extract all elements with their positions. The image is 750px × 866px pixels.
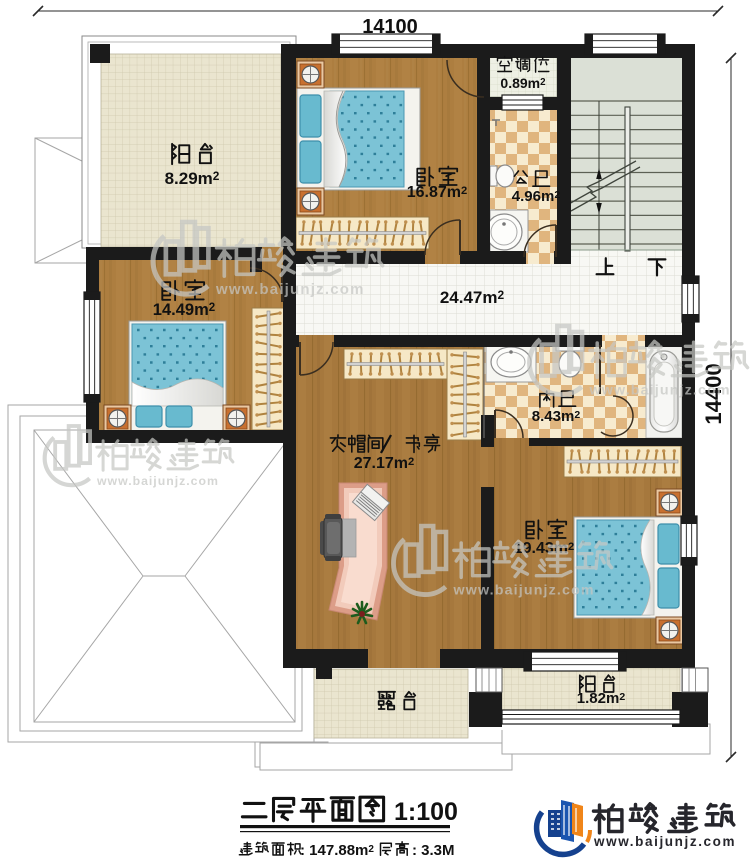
svg-text:: 147.88m2: : 147.88m2 (300, 842, 374, 859)
svg-text:www.baijunjz.com: www.baijunjz.com (96, 474, 219, 488)
svg-text:: 3.3M: : 3.3M (412, 842, 455, 859)
svg-text:www.baijunjz.com: www.baijunjz.com (589, 382, 731, 398)
svg-text:4.96m2: 4.96m2 (512, 188, 561, 205)
svg-text:www.baijunjz.com: www.baijunjz.com (593, 834, 736, 849)
svg-text:1:100: 1:100 (394, 798, 458, 826)
svg-text:0.89m2: 0.89m2 (500, 75, 546, 91)
svg-text:24.47m2: 24.47m2 (440, 288, 505, 307)
svg-text:16.87m2: 16.87m2 (407, 184, 468, 201)
svg-text:1.82m2: 1.82m2 (577, 690, 626, 707)
svg-text:27.17m2: 27.17m2 (354, 455, 415, 472)
svg-text:14100: 14100 (362, 16, 418, 38)
svg-text:14.49m2: 14.49m2 (153, 301, 215, 319)
svg-text:www.baijunjz.com: www.baijunjz.com (453, 582, 595, 598)
svg-text:www.baijunjz.com: www.baijunjz.com (215, 281, 365, 298)
svg-text:8.43m2: 8.43m2 (532, 408, 581, 425)
svg-text:8.29m2: 8.29m2 (165, 169, 220, 188)
